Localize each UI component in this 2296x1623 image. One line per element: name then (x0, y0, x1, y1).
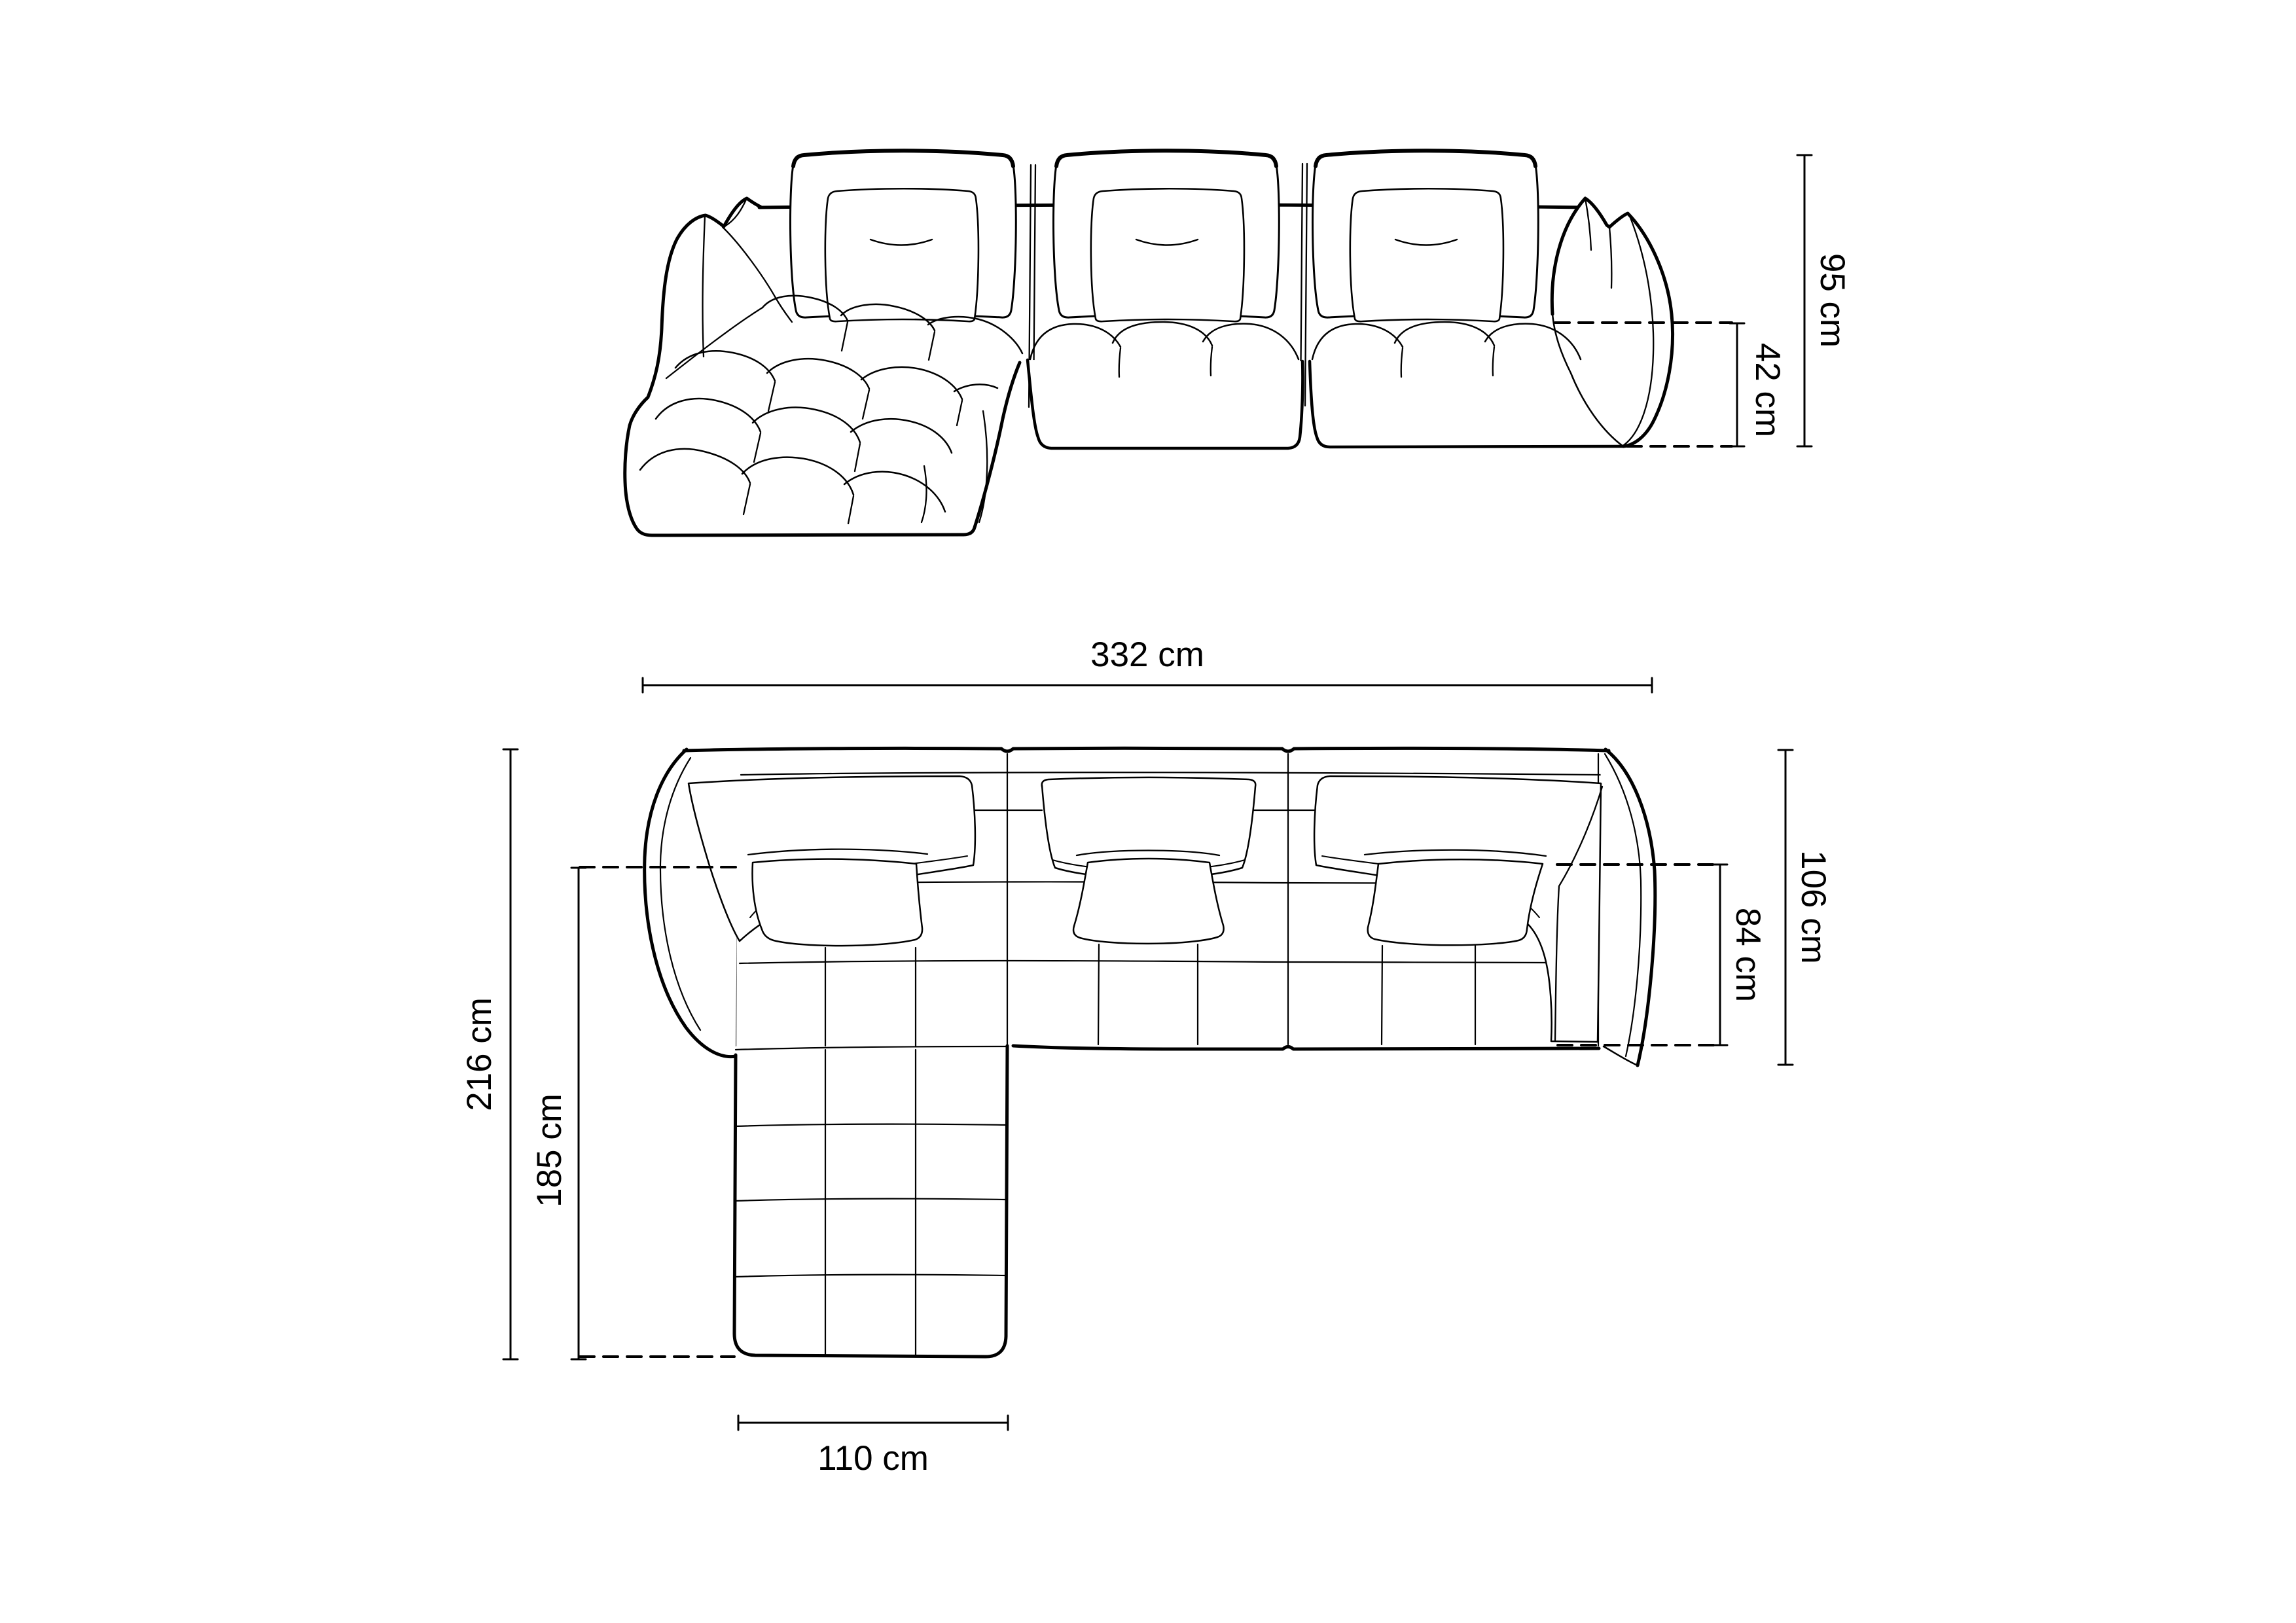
svg-text:95 cm: 95 cm (1813, 253, 1852, 348)
svg-text:110 cm: 110 cm (817, 1439, 929, 1478)
svg-text:332 cm: 332 cm (1090, 635, 1204, 674)
svg-text:185 cm: 185 cm (530, 1094, 569, 1207)
svg-text:216 cm: 216 cm (460, 997, 499, 1111)
svg-text:106 cm: 106 cm (1794, 850, 1833, 964)
svg-text:84 cm: 84 cm (1729, 908, 1767, 1002)
svg-text:42 cm: 42 cm (1748, 343, 1787, 437)
